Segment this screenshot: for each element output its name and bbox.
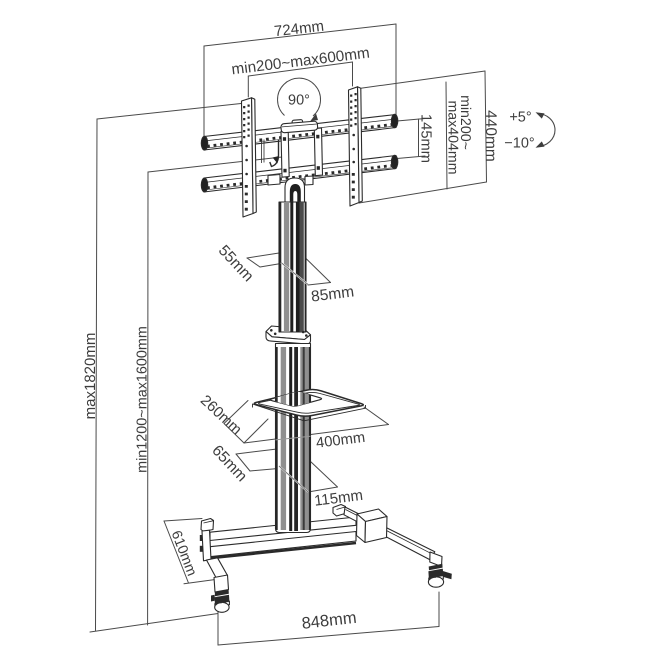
- svg-text:440mm: 440mm: [482, 110, 499, 162]
- svg-text:max1820mm: max1820mm: [82, 333, 99, 420]
- svg-text:90°: 90°: [288, 93, 310, 109]
- svg-text:145mm: 145mm: [418, 114, 434, 163]
- svg-text:+5°: +5°: [509, 110, 531, 126]
- svg-text:min1200~max1600mm: min1200~max1600mm: [134, 326, 150, 473]
- svg-text:−10°: −10°: [504, 136, 534, 152]
- svg-text:max404mm: max404mm: [445, 100, 461, 174]
